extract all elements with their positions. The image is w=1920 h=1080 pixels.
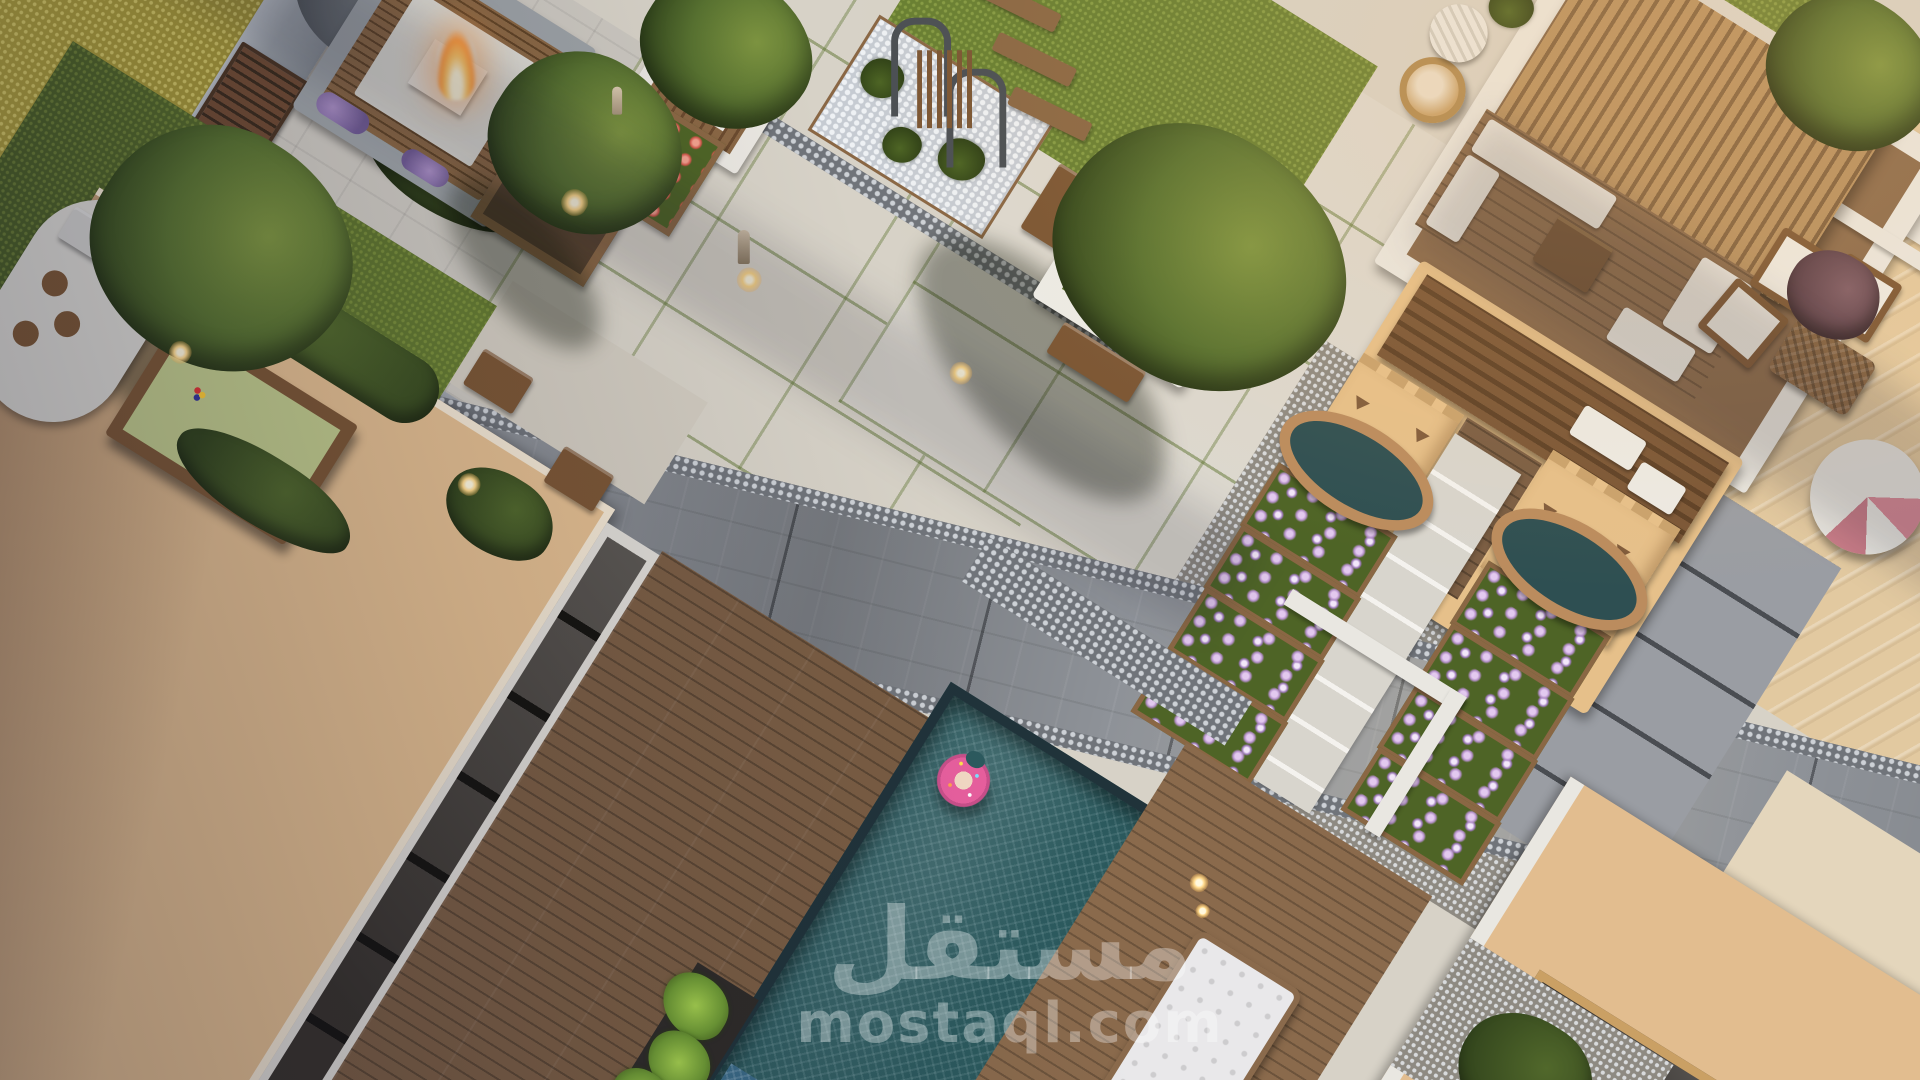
wood-stool (8, 316, 44, 352)
wood-stool (37, 265, 73, 301)
decor-slat-screen (917, 50, 975, 128)
wood-stool (49, 306, 85, 342)
coffee-table (1532, 215, 1614, 293)
donut-pool-float (926, 743, 1000, 817)
hanging-egg-chair (1400, 57, 1466, 123)
render-viewport: مستقل mostaql.com (0, 0, 1920, 1080)
garden-statue (612, 87, 622, 115)
tall-statue (738, 230, 750, 264)
billiard-balls (188, 384, 209, 404)
fire-flame (437, 30, 477, 100)
garden-scene-plane (0, 0, 1920, 1080)
